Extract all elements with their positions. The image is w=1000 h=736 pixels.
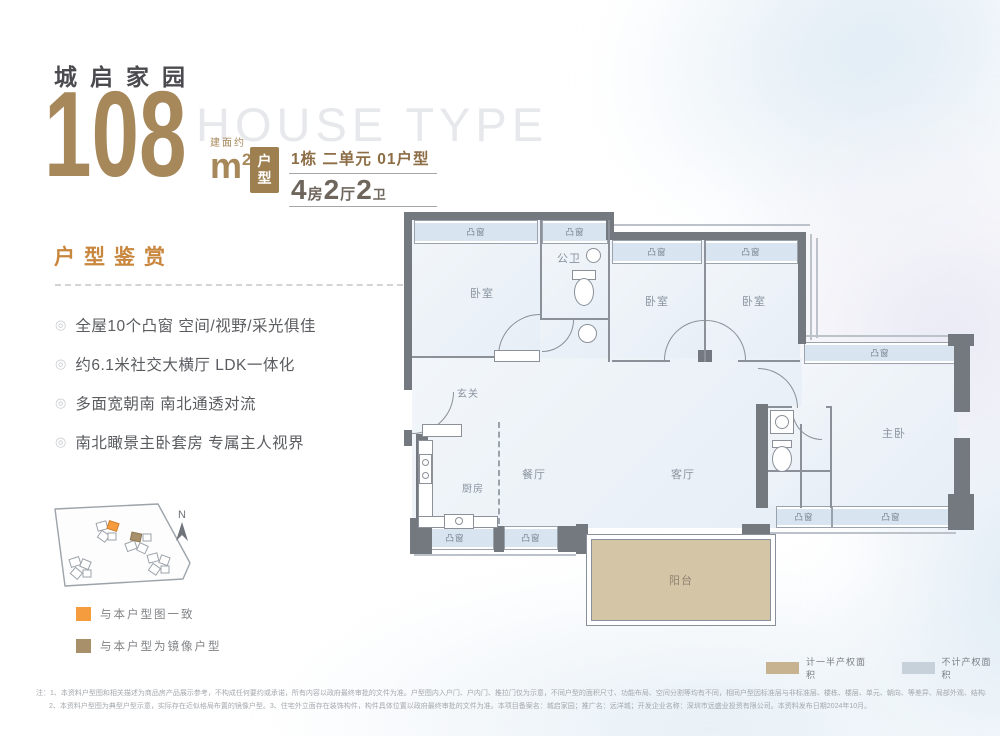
fridge-icon: [422, 424, 462, 437]
feature-item: ◎南北瞰景主卧套房 专属主人视界: [55, 431, 316, 453]
wall: [800, 424, 802, 508]
sink-basin: [775, 415, 789, 429]
room-label-public-bath: 公卫: [519, 250, 619, 266]
cabinet-icon: [494, 350, 540, 362]
wall: [738, 360, 800, 362]
wall: [756, 404, 768, 508]
wall: [404, 358, 412, 390]
layout-spec: 4 房 2 厅 2 卫: [289, 175, 437, 207]
feature-text: 南北瞰景主卧套房 专属主人视界: [75, 431, 304, 453]
feature-item: ◎约6.1米社交大横厅 LDK一体化: [55, 353, 316, 375]
wall: [404, 212, 612, 220]
type-badge: 户 型: [250, 147, 279, 193]
site-plan: N: [48, 496, 200, 602]
bay-window-label: 凸窗: [445, 532, 464, 544]
legend-label: 计一半产权面积: [806, 655, 874, 681]
bay-window-label: 凸窗: [466, 226, 485, 238]
rooms-count: 4: [291, 176, 307, 204]
wall: [954, 342, 970, 412]
bay-window: 凸窗: [804, 342, 956, 364]
room-label-dining: 餐厅: [484, 466, 584, 482]
badge-char: 型: [258, 170, 272, 188]
bullet-icon: ◎: [55, 395, 66, 411]
room-label-kitchen: 厨房: [423, 480, 523, 495]
baths-count: 2: [356, 176, 372, 204]
legend-label: 与本户型为镜像户型: [100, 638, 222, 654]
area-unit: m2: [210, 150, 251, 182]
site-legend-row: 与本户型为镜像户型: [76, 638, 222, 654]
balcony: 阳台: [586, 534, 776, 626]
bay-window-label: 凸窗: [881, 511, 900, 523]
features-title: 户型鉴赏: [54, 241, 174, 271]
footnote-line-1: 注：1、本资料户型图和相关描述为商品房产品展示参考，不构成任何要约或承诺，所有内…: [36, 688, 986, 698]
legend-label: 与本户型图一致: [100, 606, 195, 622]
feature-text: 多面宽朝南 南北通透对流: [75, 392, 256, 414]
wall: [816, 238, 818, 338]
feature-item: ◎全屋10个凸窗 空间/视野/采光俱佳: [55, 314, 316, 336]
bay-window: 凸窗: [832, 506, 950, 528]
wall: [810, 234, 812, 340]
wall: [798, 232, 806, 344]
area-headline: 108 建面约 m2: [44, 84, 251, 184]
unit-info: 1栋 二单元 01户型: [289, 147, 437, 174]
bay-window: 凸窗: [504, 526, 558, 550]
wall: [404, 430, 412, 446]
wall: [412, 356, 498, 358]
bullet-icon: ◎: [55, 434, 66, 450]
legend-swatch-half-area: [766, 662, 799, 674]
site-building-highlight-brown: [130, 532, 141, 542]
wall: [608, 220, 610, 362]
bay-window: 凸窗: [612, 240, 702, 264]
washer-icon: [578, 324, 597, 343]
bay-window: 凸窗: [414, 220, 538, 244]
stove-burner: [422, 459, 429, 466]
bay-window-label: 凸窗: [741, 246, 760, 258]
bullet-icon: ◎: [55, 356, 66, 372]
unit-m: m: [210, 145, 242, 186]
north-label: N: [178, 509, 186, 521]
wall: [612, 360, 670, 362]
feature-item: ◎多面宽朝南 南北通透对流: [55, 392, 316, 414]
wall: [558, 526, 576, 552]
bay-window-label: 凸窗: [647, 246, 666, 258]
toilet-icon: [574, 278, 594, 306]
room-label-master: 主卧: [844, 425, 944, 441]
room-label-balcony: 阳台: [669, 572, 693, 588]
legend-label: 不计产权面积: [942, 655, 1000, 681]
bay-window: 凸窗: [704, 240, 798, 264]
rooms-unit: 房: [308, 183, 323, 204]
area-number: 108: [44, 84, 156, 184]
poster-page: 城启家园 HOUSE TYPE 108 建面约 m2 户 型 1栋 二单元 01…: [0, 0, 1000, 736]
project-name: 城启家园: [54, 58, 198, 92]
room-label-foyer: 玄关: [418, 385, 518, 400]
footnote-line-2: 2、本资料户型图为典型户型示意，实际存在近似格局布置的镜像户型。3、住宅外立面存…: [49, 701, 999, 711]
unit-spec: 户 型 1栋 二单元 01户型 4 房 2 厅 2 卫: [250, 147, 437, 207]
bay-window: 凸窗: [542, 220, 608, 244]
wall: [948, 494, 974, 530]
wall: [806, 335, 950, 337]
room-label-bedroom-3: 卧室: [704, 293, 804, 309]
wall: [770, 532, 956, 534]
bay-window-label: 凸窗: [521, 532, 540, 544]
sink-basin: [455, 517, 463, 525]
wall: [830, 406, 832, 508]
floor-plan: 凸窗 凸窗 凸窗 凸窗 凸窗 凸窗 凸窗 凸窗 凸窗: [402, 210, 980, 638]
room-label-living: 客厅: [633, 466, 733, 482]
badge-char: 户: [258, 153, 272, 171]
wall: [404, 212, 412, 358]
wall: [414, 554, 576, 556]
room-label-bedroom-2: 卧室: [607, 293, 707, 309]
feature-text: 全屋10个凸窗 空间/视野/采光俱佳: [75, 314, 316, 336]
bay-window-label: 凸窗: [870, 347, 889, 359]
room-fill: [412, 358, 802, 528]
wall: [540, 220, 542, 318]
baths-unit: 卫: [373, 184, 386, 203]
toilet-icon: [772, 446, 792, 472]
bay-window-label: 凸窗: [565, 226, 584, 238]
site-legend-row: 与本户型图一致: [76, 606, 195, 622]
room-label-bedroom-1: 卧室: [432, 285, 532, 301]
legend-swatch-brown: [76, 639, 91, 653]
feature-text: 约6.1米社交大横厅 LDK一体化: [75, 353, 295, 375]
stove-burner: [422, 472, 429, 479]
bullet-icon: ◎: [55, 317, 66, 333]
bay-window: 凸窗: [776, 506, 832, 528]
legend-swatch-orange: [76, 607, 91, 621]
wall: [954, 438, 970, 500]
bay-window-label: 凸窗: [794, 511, 813, 523]
wall: [494, 526, 504, 552]
halls-unit: 厅: [340, 183, 355, 204]
north-arrow: N: [176, 509, 188, 541]
plan-legend: 计一半产权面积 不计产权面积: [766, 655, 1000, 681]
feature-list: ◎全屋10个凸窗 空间/视野/采光俱佳 ◎约6.1米社交大横厅 LDK一体化 ◎…: [55, 314, 316, 470]
wall: [608, 224, 810, 226]
halls-count: 2: [324, 176, 340, 204]
legend-swatch-no-area: [902, 662, 935, 674]
wall: [608, 232, 806, 240]
dashed-divider: [55, 284, 403, 286]
